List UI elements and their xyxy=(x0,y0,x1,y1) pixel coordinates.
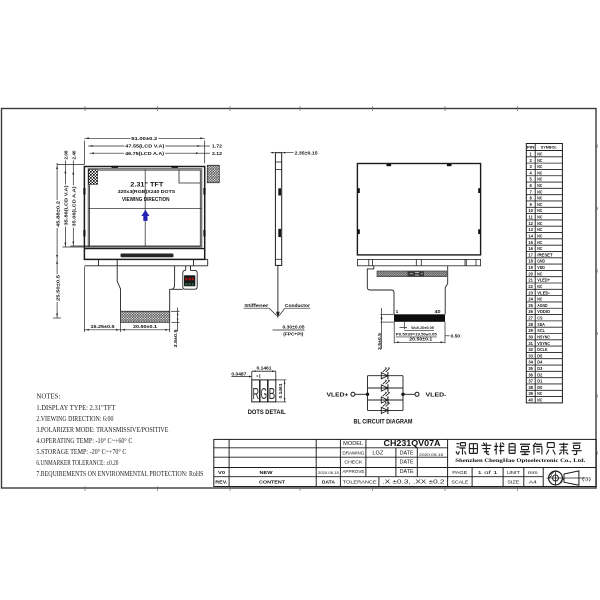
svg-text:VDD: VDD xyxy=(537,265,545,270)
svg-text:15.25±0.5: 15.25±0.5 xyxy=(91,324,116,329)
svg-text:CH231QV07A: CH231QV07A xyxy=(384,438,441,448)
svg-text:Shenzhen ChengHao Optoelectron: Shenzhen ChengHao Optoelectronic Co., Lt… xyxy=(455,459,585,464)
svg-text:PIN: PIN xyxy=(527,144,535,149)
svg-text:Stiffener: Stiffener xyxy=(244,303,268,308)
svg-text:NC: NC xyxy=(537,164,542,169)
svg-text:D0: D0 xyxy=(537,385,543,390)
svg-text:BL CIRCUIT DIAGRAM: BL CIRCUIT DIAGRAM xyxy=(354,419,413,425)
svg-text:2.08: 2.08 xyxy=(64,150,69,160)
svg-text:NC: NC xyxy=(537,158,542,163)
svg-text:G: G xyxy=(261,386,268,403)
svg-text:38: 38 xyxy=(528,385,533,390)
svg-text:NC: NC xyxy=(537,246,542,251)
svg-text:25: 25 xyxy=(528,303,533,308)
svg-text:VDDIO: VDDIO xyxy=(537,309,551,314)
svg-text:CS: CS xyxy=(537,316,542,321)
svg-text:NC: NC xyxy=(537,215,542,220)
svg-text:D1: D1 xyxy=(537,379,543,384)
svg-text:1 of 1: 1 of 1 xyxy=(478,470,499,476)
svg-text:VIEWING DIRECTION: VIEWING DIRECTION xyxy=(122,197,170,203)
svg-text:NC: NC xyxy=(537,189,542,194)
svg-text:R: R xyxy=(253,386,260,403)
svg-text:29: 29 xyxy=(528,328,533,333)
svg-text:(FPC+PI): (FPC+PI) xyxy=(283,332,304,337)
svg-text:NC: NC xyxy=(537,196,542,201)
svg-text:6.UNMARKER TOLERANCE: ±0.20: 6.UNMARKER TOLERANCE: ±0.20 xyxy=(36,459,118,467)
svg-text:HSYNC: HSYNC xyxy=(537,334,550,339)
svg-text:14: 14 xyxy=(528,233,533,238)
svg-text:DRAWING: DRAWING xyxy=(342,450,364,456)
svg-text:V0: V0 xyxy=(218,470,226,475)
svg-text:VLED-: VLED- xyxy=(537,290,550,295)
svg-text:NC: NC xyxy=(537,183,542,188)
svg-text:TOLERANCE: TOLERANCE xyxy=(343,480,377,486)
svg-text:2.40: 2.40 xyxy=(71,150,76,160)
svg-text:NC: NC xyxy=(537,297,542,302)
svg-text:2020.05.15: 2020.05.15 xyxy=(318,471,339,475)
svg-text:1: 1 xyxy=(396,309,399,315)
svg-text:SCL: SCL xyxy=(537,328,545,333)
svg-text:2.VIEWING DIRECTION: 6:00: 2.VIEWING DIRECTION: 6:00 xyxy=(36,415,113,423)
svg-text:NC: NC xyxy=(537,227,542,232)
svg-text:0.1461: 0.1461 xyxy=(257,366,273,371)
svg-text:MODEL: MODEL xyxy=(343,441,363,447)
svg-text:11: 11 xyxy=(529,215,534,220)
svg-text:CHECK: CHECK xyxy=(344,460,363,466)
svg-text:NC: NC xyxy=(537,177,542,182)
svg-text:47.55(LCD V.A): 47.55(LCD V.A) xyxy=(125,144,165,149)
svg-text:10: 10 xyxy=(528,208,533,213)
svg-text:DATA: DATA xyxy=(322,480,336,485)
svg-text:NC: NC xyxy=(537,284,542,289)
svg-text:NC: NC xyxy=(537,151,542,156)
svg-text:VLED+: VLED+ xyxy=(537,278,550,283)
svg-text:SDA: SDA xyxy=(537,322,545,327)
svg-text:NC: NC xyxy=(537,221,542,226)
svg-text:DATE: DATE xyxy=(400,460,415,466)
svg-text:13: 13 xyxy=(528,227,533,232)
svg-text:NC: NC xyxy=(537,391,542,396)
svg-text:3.8±0.5: 3.8±0.5 xyxy=(173,329,178,348)
svg-text:D5: D5 xyxy=(537,353,543,358)
svg-text:320x3(RGB)X240 DOTS: 320x3(RGB)X240 DOTS xyxy=(118,189,176,195)
svg-text:22: 22 xyxy=(528,284,533,289)
svg-text:2.12: 2.12 xyxy=(212,151,223,156)
svg-text:DCLK: DCLK xyxy=(537,347,547,352)
svg-text:46.75(LCD A.A): 46.75(LCD A.A) xyxy=(125,151,165,156)
svg-text:20.50±0.1: 20.50±0.1 xyxy=(409,336,433,341)
svg-text:NC: NC xyxy=(537,202,542,207)
svg-text:3.5±0.5: 3.5±0.5 xyxy=(377,332,382,350)
svg-text:SIZE: SIZE xyxy=(507,480,519,486)
svg-text:0.50: 0.50 xyxy=(451,333,461,338)
svg-text:NC: NC xyxy=(537,233,542,238)
svg-text:LGZ: LGZ xyxy=(372,451,383,457)
svg-text:W=0.20±0.05: W=0.20±0.05 xyxy=(411,325,434,330)
svg-text:D4: D4 xyxy=(537,360,543,365)
svg-text:12: 12 xyxy=(528,221,533,226)
svg-text:3.POLARIZER MODE: TRANSMISSIVE: 3.POLARIZER MODE: TRANSMISSIVE/POSITIVE xyxy=(36,426,169,434)
svg-text:33: 33 xyxy=(528,353,533,358)
svg-text:36: 36 xyxy=(528,372,533,377)
svg-text:NEW: NEW xyxy=(260,470,274,475)
svg-text:.X ±0.3, .XX ±0.2: .X ±0.3, .XX ±0.2 xyxy=(383,480,445,486)
svg-text:1.72: 1.72 xyxy=(212,144,223,149)
svg-text:25.50±0.5: 25.50±0.5 xyxy=(55,274,60,301)
svg-text:VSYNC: VSYNC xyxy=(537,341,550,346)
svg-text:APPROVE: APPROVE xyxy=(342,469,364,475)
svg-text:21: 21 xyxy=(528,278,533,283)
svg-text:17: 17 xyxy=(528,252,533,257)
svg-text:27: 27 xyxy=(528,316,533,321)
svg-text:2.35±0.15: 2.35±0.15 xyxy=(295,150,318,155)
svg-text:16: 16 xyxy=(528,246,533,251)
svg-text:Conductor: Conductor xyxy=(285,303,310,308)
svg-text:DATE: DATE xyxy=(400,469,415,475)
svg-text:SCALE: SCALE xyxy=(451,480,468,486)
svg-text:GND: GND xyxy=(537,259,545,264)
svg-text:DOTS DETAIL: DOTS DETAIL xyxy=(248,409,286,416)
svg-text:23: 23 xyxy=(528,290,533,295)
svg-text:5.STORAGE TEMP: -20° C~+70° C: 5.STORAGE TEMP: -20° C~+70° C xyxy=(36,448,126,456)
svg-text:40: 40 xyxy=(528,398,533,403)
svg-text:51.00±0.2: 51.00±0.2 xyxy=(131,136,157,141)
svg-text:24: 24 xyxy=(528,297,533,302)
svg-text:/RESET: /RESET xyxy=(537,252,553,257)
svg-text:VLED+: VLED+ xyxy=(327,392,350,398)
svg-text:15: 15 xyxy=(528,240,533,245)
svg-text:NC: NC xyxy=(537,398,542,403)
svg-text:0.30±0.05: 0.30±0.05 xyxy=(283,324,305,329)
svg-text:35.06(LCD A.A): 35.06(LCD A.A) xyxy=(72,186,77,227)
svg-text:B: B xyxy=(269,386,276,403)
svg-text:40: 40 xyxy=(435,309,441,315)
svg-text:32: 32 xyxy=(528,347,533,352)
svg-text:0.1461: 0.1461 xyxy=(278,383,283,399)
svg-text:UNIT: UNIT xyxy=(507,470,520,476)
svg-text:37: 37 xyxy=(528,379,533,384)
svg-text:mm: mm xyxy=(528,471,538,476)
svg-text:2020.05.15: 2020.05.15 xyxy=(419,453,443,457)
svg-text:45.88±0.2: 45.88±0.2 xyxy=(55,200,60,227)
svg-text:NC: NC xyxy=(537,208,542,213)
svg-text:REV.: REV. xyxy=(215,480,227,485)
svg-text:30: 30 xyxy=(528,334,533,339)
svg-text:VLED-: VLED- xyxy=(426,392,447,398)
svg-text:18: 18 xyxy=(528,259,533,264)
svg-text:NC: NC xyxy=(537,240,542,245)
svg-text:35: 35 xyxy=(528,366,533,371)
svg-text:(3): (3) xyxy=(582,476,592,482)
svg-text:34: 34 xyxy=(528,360,533,365)
svg-text:28: 28 xyxy=(528,322,533,327)
svg-text:4.OPERATING TEMP: -10° C~+60°: 4.OPERATING TEMP: -10° C~+60° C xyxy=(36,437,132,445)
svg-text:2.31" TFT: 2.31" TFT xyxy=(130,182,163,188)
svg-text:19: 19 xyxy=(528,265,533,270)
svg-text:AGND: AGND xyxy=(537,303,547,308)
svg-text:D2: D2 xyxy=(537,372,543,377)
svg-text:20.50±0.1: 20.50±0.1 xyxy=(133,324,158,329)
svg-text:7.REQUIREMENTS ON ENVIRONMENTA: 7.REQUIREMENTS ON ENVIRONMENTAL PROTECTI… xyxy=(36,470,203,478)
svg-text:CONTENT: CONTENT xyxy=(259,480,285,485)
svg-text:A4: A4 xyxy=(529,480,537,486)
svg-text:D3: D3 xyxy=(537,366,543,371)
svg-text:1.DISPLAY TYPE: 2.31"TFT: 1.DISPLAY TYPE: 2.31"TFT xyxy=(36,404,116,412)
svg-text:31: 31 xyxy=(528,341,533,346)
svg-text:DATE: DATE xyxy=(400,450,415,456)
svg-text:NC: NC xyxy=(537,271,542,276)
svg-text:SYMBOL: SYMBOL xyxy=(541,144,558,149)
svg-text:PAGE: PAGE xyxy=(452,470,467,476)
svg-text:NOTES:: NOTES: xyxy=(36,393,60,401)
svg-text:20: 20 xyxy=(528,271,533,276)
svg-text:26: 26 xyxy=(528,309,533,314)
svg-text:39: 39 xyxy=(528,391,533,396)
svg-text:NC: NC xyxy=(537,170,542,175)
svg-text:35.86(LCD V.A): 35.86(LCD V.A) xyxy=(64,185,69,226)
svg-text:0.0487: 0.0487 xyxy=(231,371,247,376)
